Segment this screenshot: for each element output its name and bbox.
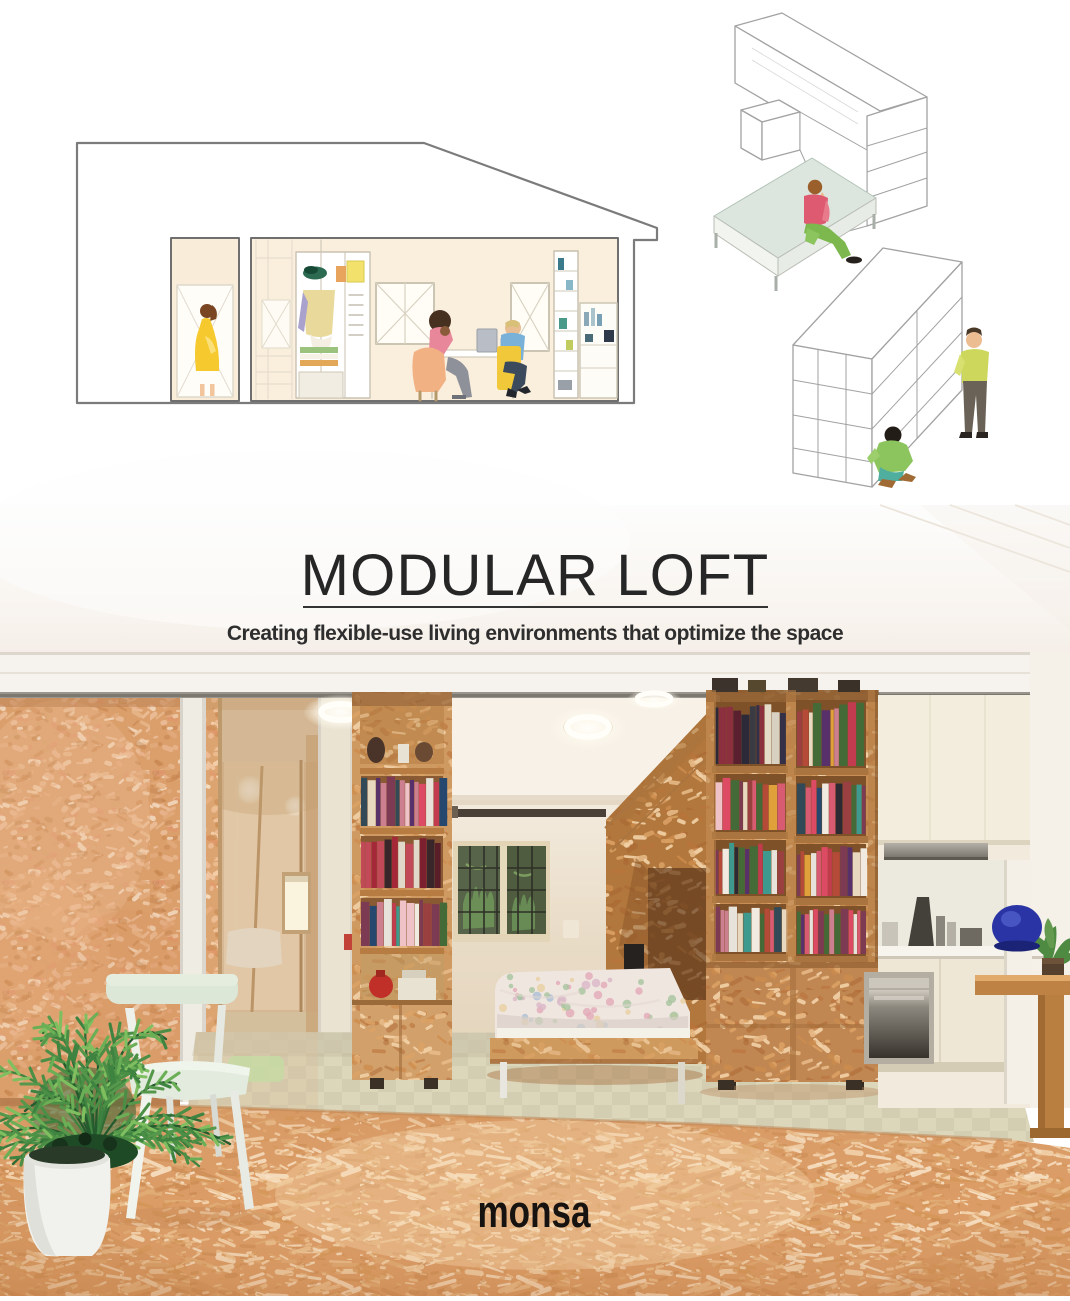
- svg-text:Creating flexible-use living e: Creating flexible-use living environment…: [227, 622, 843, 645]
- svg-text:monsa: monsa: [477, 1186, 591, 1237]
- svg-text:MODULAR LOFT: MODULAR LOFT: [301, 543, 770, 608]
